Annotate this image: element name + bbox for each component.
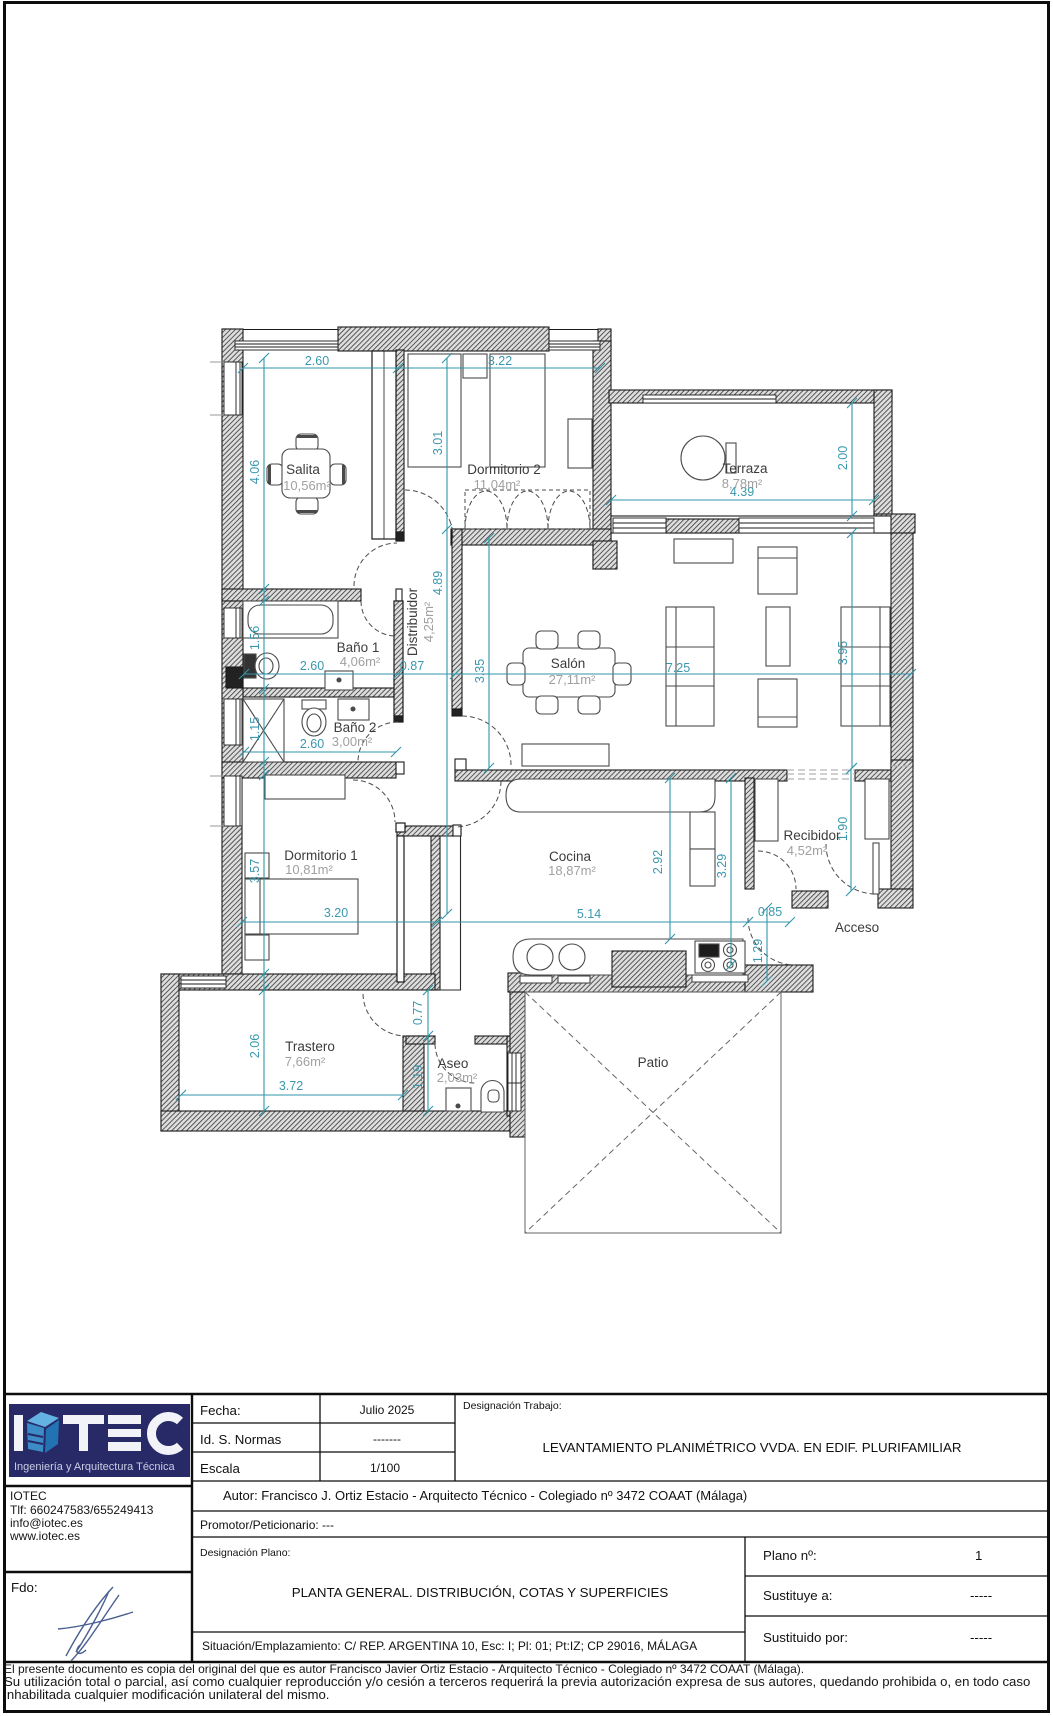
svg-text:0.87: 0.87 [400,659,424,673]
svg-text:IOTEC: IOTEC [10,1489,47,1503]
svg-text:Dormitorio 2: Dormitorio 2 [467,462,541,477]
svg-text:27,11m²: 27,11m² [549,672,596,687]
svg-text:3.35: 3.35 [473,659,487,683]
svg-text:2.60: 2.60 [300,659,324,673]
svg-text:7.25: 7.25 [666,661,690,675]
svg-text:4,52m²: 4,52m² [787,843,828,858]
svg-text:0.85: 0.85 [758,905,782,919]
svg-text:10,56m²: 10,56m² [283,478,331,493]
svg-text:4,25m²: 4,25m² [421,601,436,642]
svg-text:Escala: Escala [200,1461,241,1476]
svg-text:info@iotec.es: info@iotec.es [10,1516,83,1530]
svg-text:8,78m²: 8,78m² [722,476,763,491]
svg-text:3.57: 3.57 [248,859,262,883]
svg-text:Situación/Emplazamiento: C/ RE: Situación/Emplazamiento: C/ REP. ARGENTI… [202,1638,697,1653]
svg-text:2.60: 2.60 [305,354,329,368]
svg-text:3.22: 3.22 [488,354,512,368]
svg-text:1/100: 1/100 [370,1461,400,1475]
svg-text:Baño 1: Baño 1 [337,640,380,655]
svg-text:1.15: 1.15 [248,717,262,741]
svg-text:Distribuidor: Distribuidor [405,587,420,656]
svg-text:Cocina: Cocina [549,849,592,864]
svg-text:-----: ----- [970,1588,992,1603]
svg-text:Trastero: Trastero [285,1039,335,1054]
svg-text:3.20: 3.20 [324,906,348,920]
svg-text:Patio: Patio [638,1055,669,1070]
svg-text:0.77: 0.77 [411,1001,425,1025]
svg-text:18,87m²: 18,87m² [548,863,596,878]
svg-text:7,66m²: 7,66m² [285,1054,326,1069]
svg-text:4.06: 4.06 [248,460,262,484]
svg-text:Fdo:: Fdo: [11,1580,38,1595]
svg-text:3.72: 3.72 [279,1079,303,1093]
svg-text:10,81m²: 10,81m² [285,862,333,877]
svg-text:2.06: 2.06 [248,1034,262,1058]
svg-text:www.iotec.es: www.iotec.es [9,1529,80,1543]
svg-text:Baño 2: Baño 2 [334,720,377,735]
svg-text:-------: ------- [373,1432,401,1446]
svg-text:inhabilitada cualquier modific: inhabilitada cualquier modificación unil… [4,1687,329,1702]
svg-text:Sustituye a:: Sustituye a: [763,1588,832,1603]
svg-text:-----: ----- [970,1630,992,1645]
svg-text:Aseo: Aseo [438,1056,469,1071]
svg-text:Recibidor: Recibidor [783,828,841,843]
svg-text:1.56: 1.56 [248,626,262,650]
svg-text:LEVANTAMIENTO PLANIMÉTRICO VVD: LEVANTAMIENTO PLANIMÉTRICO VVDA. EN EDIF… [543,1440,962,1455]
svg-text:Plano nº:: Plano nº: [763,1548,817,1563]
svg-text:Fecha:: Fecha: [200,1403,241,1418]
svg-text:Dormitorio 1: Dormitorio 1 [284,848,358,863]
svg-text:Julio 2025: Julio 2025 [360,1403,415,1417]
svg-text:Terraza: Terraza [722,461,768,476]
svg-text:1.29: 1.29 [751,939,765,963]
svg-text:Ingeniería y Arquitectura Técn: Ingeniería y Arquitectura Técnica [14,1461,175,1473]
svg-text:Designación Trabajo:: Designación Trabajo: [463,1400,562,1412]
svg-text:Autor: Francisco J. Ortiz Esta: Autor: Francisco J. Ortiz Estacio - Arqu… [223,1488,747,1503]
svg-text:2,03m²: 2,03m² [437,1070,478,1085]
svg-text:3,00m²: 3,00m² [332,734,373,749]
svg-text:3.29: 3.29 [715,854,729,878]
svg-text:Promotor/Peticionario: ---: Promotor/Peticionario: --- [200,1518,334,1532]
svg-text:2.60: 2.60 [300,737,324,751]
svg-text:Sustituido por:: Sustituido por: [763,1630,848,1645]
svg-text:2.92: 2.92 [651,850,665,874]
svg-text:4,06m²: 4,06m² [340,654,381,669]
svg-text:3.95: 3.95 [836,641,850,665]
svg-text:4.89: 4.89 [431,571,445,595]
svg-text:Salón: Salón [551,656,586,671]
svg-text:PLANTA GENERAL. DISTRIBUCIÓN,: PLANTA GENERAL. DISTRIBUCIÓN, COTAS Y SU… [292,1585,669,1600]
svg-text:3.01: 3.01 [431,431,445,455]
svg-text:Designación Plano:: Designación Plano: [200,1547,290,1559]
svg-text:1: 1 [975,1548,982,1563]
svg-text:Salita: Salita [286,462,320,477]
svg-text:5.14: 5.14 [577,907,601,921]
svg-text:11,04m²: 11,04m² [474,477,521,492]
svg-text:Tlf: 660247583/655249413: Tlf: 660247583/655249413 [10,1503,154,1517]
svg-text:Acceso: Acceso [835,920,879,935]
svg-text:2.00: 2.00 [836,446,850,470]
svg-text:1.19: 1.19 [411,1065,425,1089]
svg-text:Id. S. Normas: Id. S. Normas [200,1432,282,1447]
